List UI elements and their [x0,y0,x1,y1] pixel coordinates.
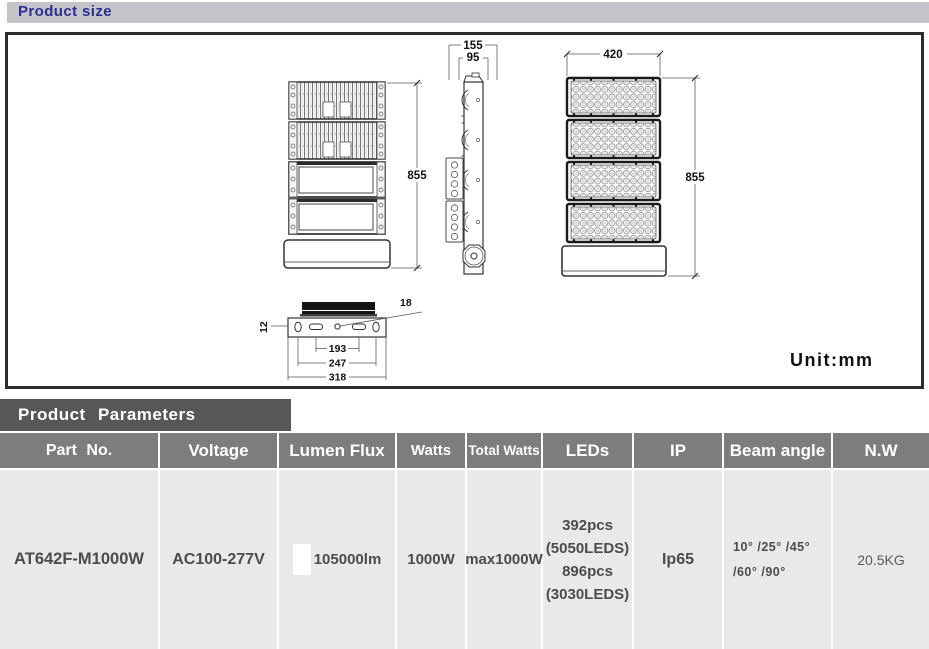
col-header-beam-angle: Beam angle [724,433,831,468]
table-header-row: Part No. Voltage Lumen Flux Watts Total … [0,433,929,468]
side-view-drawing: 155 95 [435,36,547,288]
leds-line-2: (5050LEDS) [546,537,629,560]
cell-part-no: AT642F-M1000W [0,470,158,649]
dim-bottom-318: 318 [329,372,347,384]
cell-ip: Ip65 [634,470,722,649]
product-size-bar: Product size [7,2,929,23]
dim-bottom-12: 12 [258,321,270,333]
col-header-nw: N.W [833,433,929,468]
bottom-view-drawing: 12 18 193 247 318 [252,293,427,385]
dim-bottom-193: 193 [329,343,347,355]
back-view-drawing: 855 [283,74,435,279]
dim-front-855: 855 [685,172,705,184]
col-header-lumen-flux: Lumen Flux [279,433,395,468]
col-header-voltage: Voltage [160,433,277,468]
leds-line-4: (3030LEDS) [546,583,629,606]
product-parameters-bar: Product Parameters [0,399,291,431]
product-parameters-title: Product Parameters [0,405,196,425]
dim-side-155: 155 [463,40,483,52]
cell-beam-angle: 10° /25° /45° /60° /90° [724,470,831,649]
dim-bottom-18: 18 [400,297,412,309]
col-header-watts: Watts [397,433,465,468]
table-data-row: AT642F-M1000W AC100-277V 105000lm 1000W … [0,470,929,649]
product-size-title: Product size [18,3,112,20]
cell-leds: 392pcs (5050LEDS) 896pcs (3030LEDS) [543,470,632,649]
col-header-part-no: Part No. [0,433,158,468]
dim-bottom-247: 247 [329,358,347,370]
col-header-leds: LEDs [543,433,632,468]
side-driver-boxes [446,158,463,242]
page: Product size [0,0,929,649]
cell-net-weight: 20.5KG [833,470,929,649]
beam-angle-line-2: /60° /90° [733,560,786,585]
cell-voltage: AC100-277V [160,470,277,649]
dim-side-95: 95 [467,52,480,64]
front-view-drawing: 420 855 [558,40,723,290]
beam-angle-line-1: 10° /25° /45° [733,535,810,560]
leds-line-3: 896pcs [562,560,613,583]
dim-back-855: 855 [407,170,427,182]
cell-lumen-flux: 105000lm [279,470,395,649]
back-bottom-bracket [284,240,390,268]
lumen-flux-value: 105000lm [314,551,382,568]
product-size-drawing-box: 855 155 95 [5,32,924,389]
cell-total-watts: max1000W [467,470,541,649]
cell-watts: 1000W [397,470,465,649]
dim-front-420: 420 [603,49,622,61]
side-knob [463,245,485,267]
col-header-total-watts: Total Watts [467,433,541,468]
unit-label: Unit:mm [790,350,874,371]
col-header-ip: IP [634,433,722,468]
leds-line-1: 392pcs [562,514,613,537]
white-patch [293,544,311,575]
front-bottom-bracket [562,246,666,276]
